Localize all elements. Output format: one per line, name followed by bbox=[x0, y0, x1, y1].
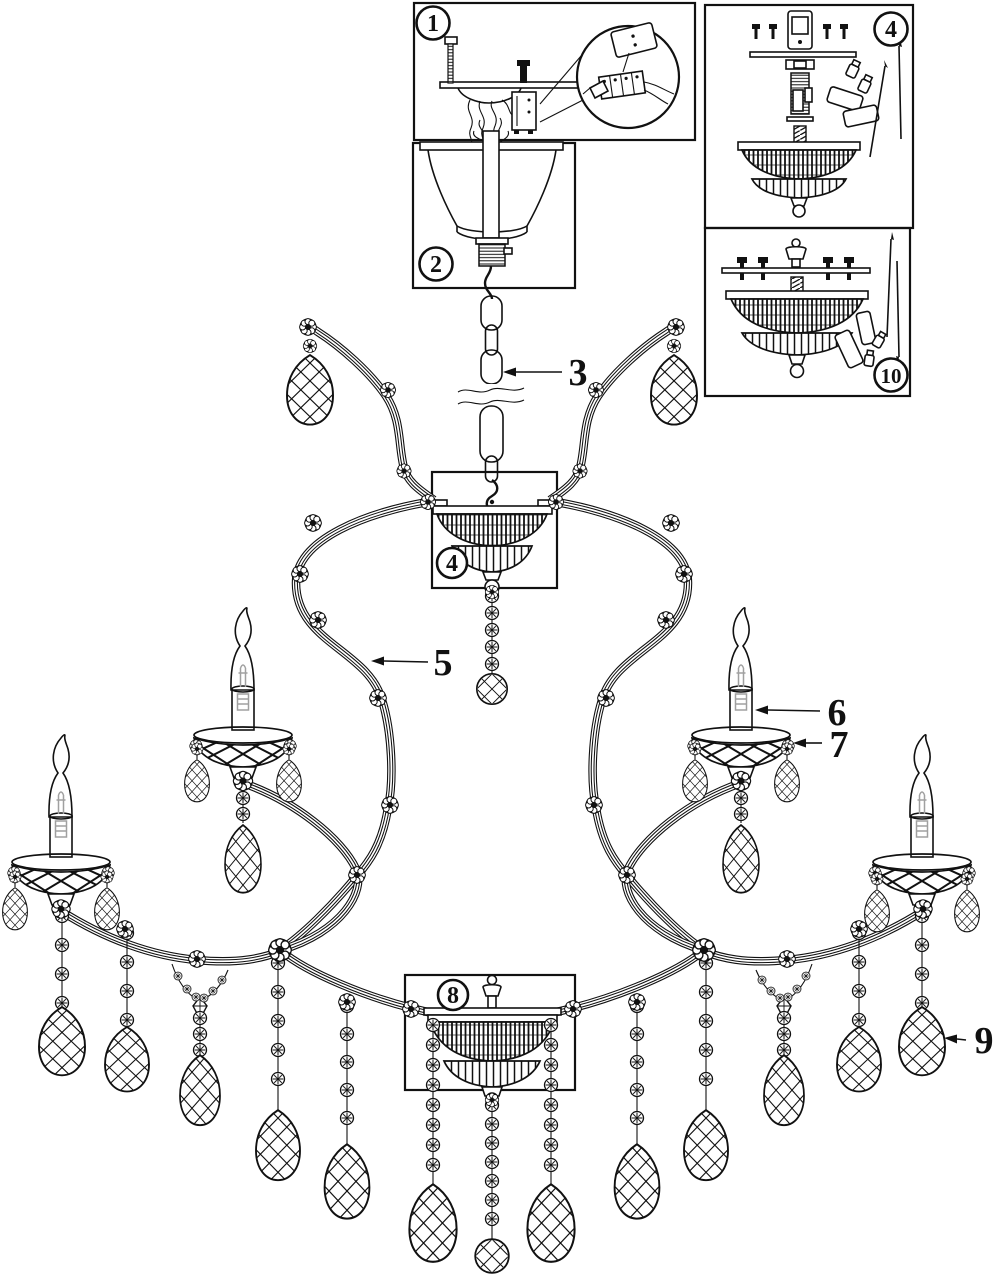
callout-4-bowl-label: 4 bbox=[446, 551, 458, 577]
callout-1: 1 bbox=[417, 7, 450, 40]
callout-2-label: 2 bbox=[430, 252, 442, 278]
mount-bar bbox=[722, 268, 870, 273]
teardrop-crystal bbox=[649, 338, 700, 441]
callout-4-bowl: 4 bbox=[437, 548, 467, 578]
callout-5-label: 5 bbox=[434, 642, 453, 684]
callout-8-label: 8 bbox=[447, 983, 459, 1009]
callout-7-label: 7 bbox=[830, 724, 849, 766]
callout-9-label: 9 bbox=[975, 1020, 994, 1062]
callout-1-label: 1 bbox=[427, 11, 439, 37]
mount-bar bbox=[750, 52, 856, 57]
callout-10-label: 10 bbox=[881, 364, 902, 388]
callout-2: 2 bbox=[420, 248, 453, 281]
junction-box bbox=[512, 92, 536, 130]
callout-3-label: 3 bbox=[569, 352, 588, 394]
wire-connectors bbox=[826, 59, 879, 127]
suspension-chain bbox=[458, 296, 524, 511]
teardrop-crystal bbox=[223, 809, 263, 909]
diagram-canvas: 1 2 4 10 4 8 3 5 bbox=[0, 0, 999, 1280]
ground-bolt bbox=[520, 66, 527, 83]
teardrop-crystal bbox=[285, 338, 336, 441]
bowl-small-exploded bbox=[738, 142, 860, 217]
mounting-screw bbox=[448, 44, 453, 83]
callout-5: 5 bbox=[371, 642, 453, 684]
ceiling-mount-drawing bbox=[440, 22, 679, 146]
callout-8: 8 bbox=[438, 980, 468, 1010]
hardware-exploded-4 bbox=[738, 11, 902, 217]
hanger-rods bbox=[887, 232, 899, 364]
chandelier-assembly-diagram: 1 2 4 10 4 8 3 5 bbox=[0, 0, 999, 1280]
callout-10: 10 bbox=[875, 359, 908, 392]
callout-7: 7 bbox=[793, 724, 849, 766]
hanger-rods bbox=[870, 39, 902, 157]
callout-4-panel: 4 bbox=[875, 13, 908, 46]
threaded-nipple bbox=[479, 244, 505, 266]
callout-4-panel-label: 4 bbox=[885, 17, 897, 43]
callout-9: 9 bbox=[944, 1020, 994, 1062]
teardrop-crystal bbox=[721, 809, 761, 909]
center-tube bbox=[483, 131, 499, 238]
hardware-exploded-10 bbox=[722, 232, 899, 378]
